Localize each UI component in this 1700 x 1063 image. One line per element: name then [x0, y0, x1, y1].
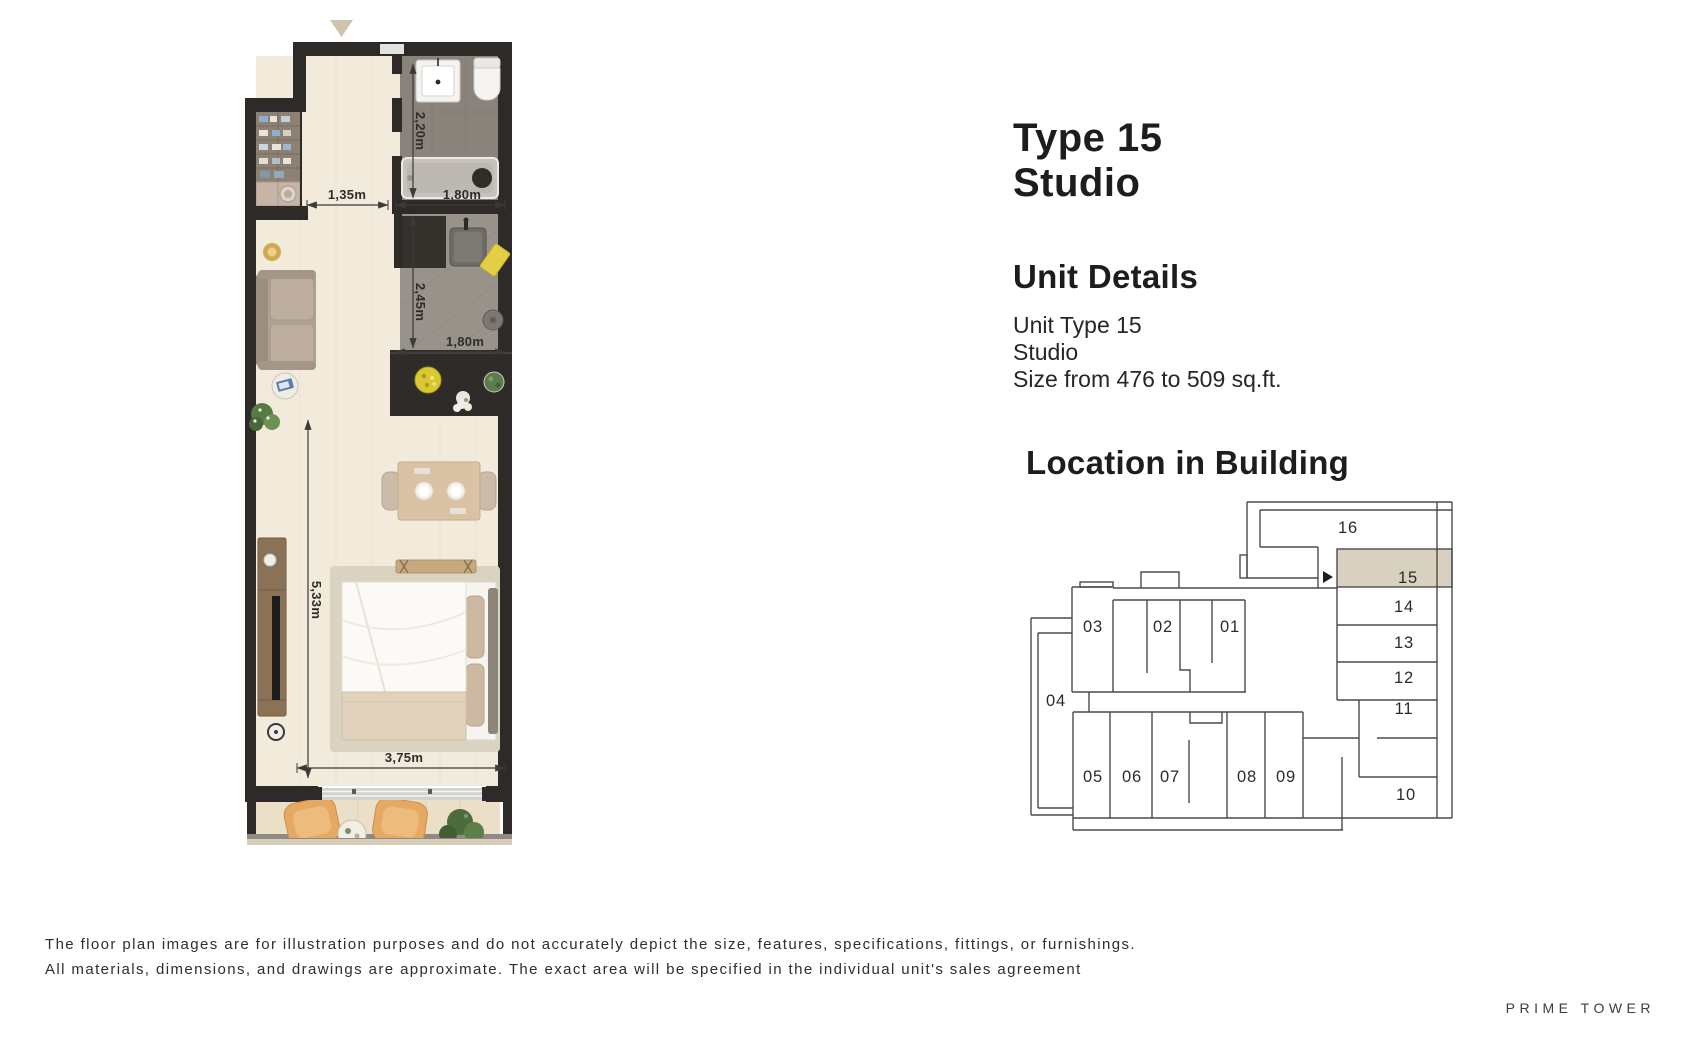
unit-label-12: 12: [1394, 669, 1414, 687]
unit-details-body: Unit Type 15 Studio Size from 476 to 509…: [1013, 312, 1281, 393]
brochure-page: { "header": { "title_line1": "Type 15", …: [0, 0, 1700, 1063]
kitchen-island: [390, 350, 512, 416]
page-title: Type 15 Studio: [1013, 116, 1163, 206]
sliding-window: [318, 787, 486, 801]
unit-label-01: 01: [1220, 618, 1240, 636]
blanket: [342, 692, 466, 740]
page-title-line2: Studio: [1013, 161, 1163, 206]
unit-label-11: 11: [1395, 700, 1414, 718]
unit-label-15: 15: [1398, 569, 1418, 587]
entry-marker-icon: [330, 20, 353, 37]
dim-living-length: 5,33m: [309, 581, 324, 619]
disclaimer-line2: All materials, dimensions, and drawings …: [45, 957, 1465, 982]
dim-kitchen-depth: 2,45m: [413, 283, 428, 321]
dining-chair: [382, 472, 400, 510]
headboard: [488, 588, 498, 734]
brand-logo: PRIME TOWER: [1506, 1000, 1655, 1016]
side-table: [272, 373, 298, 399]
dim-kitchen-width: 1,80m: [446, 334, 484, 349]
unit-label-04: 04: [1046, 692, 1066, 710]
pillow: [466, 596, 484, 658]
bed-bench: [396, 560, 476, 573]
island-plant: [484, 372, 504, 392]
tv: [272, 596, 280, 700]
unit-label-02: 02: [1153, 618, 1173, 636]
building-location-map: 16 15 14 13 12 11 10 03 02 01 04 05 06 0…: [1010, 490, 1470, 840]
wardrobe: [256, 112, 301, 206]
dining-set: [382, 462, 496, 520]
highlighted-unit-15: [1337, 549, 1452, 587]
lintel: [380, 44, 404, 54]
unit-size-line: Size from 476 to 509 sq.ft.: [1013, 366, 1281, 393]
dim-bath-depth: 2,20m: [413, 112, 428, 150]
dining-chair: [478, 472, 496, 510]
dim-living-width: 3,75m: [385, 750, 423, 765]
flower-bowl: [415, 367, 441, 393]
kitchen-cabinet: [402, 216, 446, 268]
dim-entry-width: 1,35m: [328, 187, 366, 202]
disclaimer: The floor plan images are for illustrati…: [45, 932, 1465, 982]
unit-pointer-icon: [1323, 571, 1333, 583]
unit-label-14: 14: [1394, 598, 1414, 616]
sofa: [256, 270, 316, 370]
disclaimer-line1: The floor plan images are for illustrati…: [45, 932, 1465, 957]
unit-label-13: 13: [1394, 634, 1414, 652]
unit-label-03: 03: [1083, 618, 1103, 636]
unit-label-05: 05: [1083, 768, 1103, 786]
pillow: [466, 664, 484, 726]
unit-label-08: 08: [1237, 768, 1257, 786]
unit-label-16: 16: [1338, 519, 1358, 537]
unit-label-06: 06: [1122, 768, 1142, 786]
unit-details-heading: Unit Details: [1013, 258, 1198, 296]
dim-bath-width: 1,80m: [443, 187, 481, 202]
unit-type-line: Unit Type 15: [1013, 312, 1281, 339]
unit-kind-line: Studio: [1013, 339, 1281, 366]
bed-area: [330, 560, 500, 752]
unit-label-10: 10: [1396, 786, 1416, 804]
page-title-line1: Type 15: [1013, 116, 1163, 161]
unit-label-07: 07: [1160, 768, 1180, 786]
dining-table: [398, 462, 480, 520]
floorplan-image: 1,35m 1,80m 2,20m 2,45m 1,80m 5,33m 3,75…: [225, 15, 520, 850]
tv-console: [258, 538, 286, 716]
location-heading: Location in Building: [1026, 444, 1349, 482]
unit-label-09: 09: [1276, 768, 1296, 786]
